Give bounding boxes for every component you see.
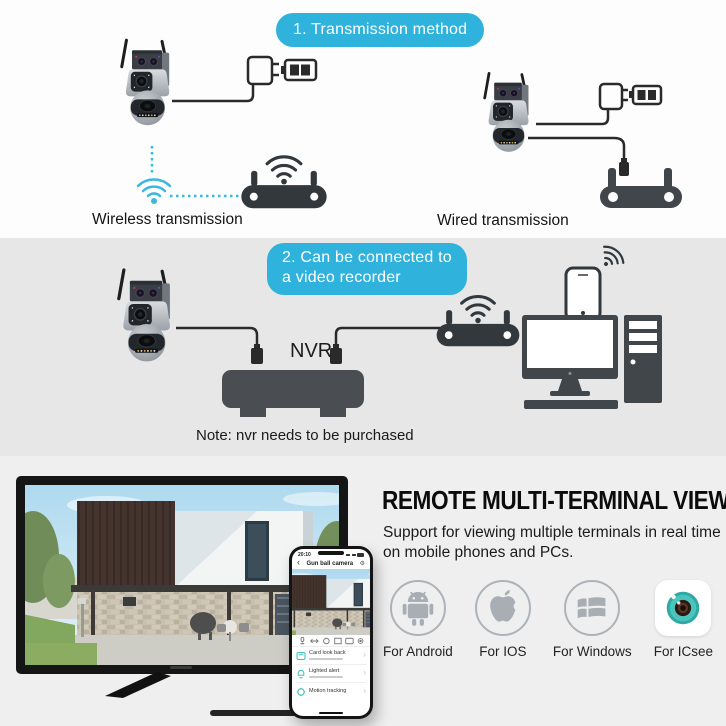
platform-icsee: For ICsee (654, 580, 713, 659)
cable-plug-icon (619, 158, 629, 176)
remote-view-subtitle: Support for viewing multiple terminals i… (383, 523, 726, 563)
nvr-cable-left (176, 328, 257, 348)
platform-row: For Android For IOS (383, 580, 713, 659)
arrows-icon (311, 639, 318, 643)
feature-subtext-placeholder (309, 676, 343, 678)
nvr-label: NVR (290, 340, 332, 363)
feature-row: Motion tracking › (296, 683, 366, 701)
wired-transmission-label: Wired transmission (437, 212, 569, 230)
product-infographic: 1. Transmission method Wireless transmis… (0, 0, 726, 726)
power-adapter-icon (248, 57, 279, 84)
platform-ios: For IOS (475, 580, 531, 659)
power-cable (536, 109, 608, 124)
power-adapter-icon (600, 84, 628, 109)
feature-name: Motion tracking (309, 689, 363, 695)
wireless-transmission-label: Wireless transmission (92, 211, 243, 229)
screenshot-icon (346, 638, 353, 644)
live-camera-feed (292, 569, 370, 635)
gear-icon: ⚙ (360, 561, 365, 567)
nvr-box-icon (222, 370, 364, 417)
tv-stand-leg (105, 672, 190, 698)
banner-transmission-method: 1. Transmission method (276, 13, 484, 47)
battery-icon (281, 60, 316, 80)
signal-icon (346, 554, 350, 557)
fullscreen-icon (335, 638, 341, 644)
feature-name: Card look back (309, 651, 363, 657)
playback-icon (296, 651, 306, 661)
app-toolbar (292, 635, 370, 647)
platform-android: For Android (383, 580, 453, 659)
alert-icon (296, 669, 306, 679)
tv-brand-logo (170, 666, 192, 669)
battery-icon (629, 86, 661, 104)
banner2-line2: a video recorder (282, 268, 452, 288)
banner-video-recorder: 2. Can be connected to a video recorder (267, 243, 467, 295)
chevron-right-icon: › (363, 669, 366, 677)
settings-dot (360, 640, 361, 641)
section-video-recorder: 2. Can be connected to a video recorder … (0, 238, 726, 456)
back-icon: ‹ (297, 558, 300, 567)
wifi-icon (352, 554, 356, 557)
battery-icon (357, 553, 364, 557)
nvr-purchase-note: Note: nvr needs to be purchased (196, 427, 414, 444)
icsee-icon (655, 580, 711, 636)
feature-row: Lighted alert › (296, 665, 366, 683)
platform-windows: For Windows (553, 580, 632, 659)
mic-stand (301, 642, 305, 643)
tracking-icon (296, 687, 306, 697)
nvr-cable-right (336, 328, 440, 348)
record-icon (324, 638, 330, 644)
smartphone-device: 20:10 ‹ Gun ball camera ⚙ (289, 546, 373, 719)
remote-view-title: REMOTE MULTI-TERMINAL VIEW (382, 485, 726, 516)
banner2-line1: 2. Can be connected to (282, 248, 452, 268)
chevron-right-icon: › (363, 687, 366, 695)
wireless-router-icon (430, 286, 526, 348)
platform-label: For Windows (553, 644, 632, 659)
phone-notch (318, 551, 344, 555)
mic-icon (301, 637, 304, 641)
apple-icon (475, 580, 531, 636)
smartphone-outline-icon (566, 268, 600, 320)
security-camera (108, 20, 186, 144)
platform-label: For IOS (479, 644, 526, 659)
security-camera (104, 252, 188, 378)
cable-plug-icon (251, 344, 263, 364)
phone-app-screen: 20:10 ‹ Gun ball camera ⚙ (292, 549, 370, 716)
section-remote-view: REMOTE MULTI-TERMINAL VIEW Support for v… (0, 456, 726, 726)
app-header: ‹ Gun ball camera ⚙ (292, 558, 370, 569)
platform-label: For Android (383, 644, 453, 659)
chevron-right-icon: › (363, 651, 366, 659)
feature-list: Card look back › Lighted alert (292, 647, 370, 701)
feature-name: Lighted alert (309, 669, 363, 675)
wireless-router-icon (238, 146, 330, 210)
status-icons (346, 553, 364, 557)
feature-row: Card look back › (296, 647, 366, 665)
wifi-signal-icon (138, 180, 170, 204)
security-camera (472, 54, 544, 170)
windows-icon (564, 580, 620, 636)
android-icon (390, 580, 446, 636)
home-indicator (319, 712, 343, 715)
feature-subtext-placeholder (309, 658, 343, 660)
wired-router-icon (600, 168, 682, 208)
desktop-computer-icon (522, 315, 662, 409)
app-title: Gun ball camera (306, 561, 353, 567)
wifi-signal-icon (595, 243, 626, 274)
platform-label: For ICsee (654, 644, 713, 659)
banner1-text: 1. Transmission method (293, 21, 467, 38)
section-transmission-method: 1. Transmission method Wireless transmis… (0, 0, 726, 238)
